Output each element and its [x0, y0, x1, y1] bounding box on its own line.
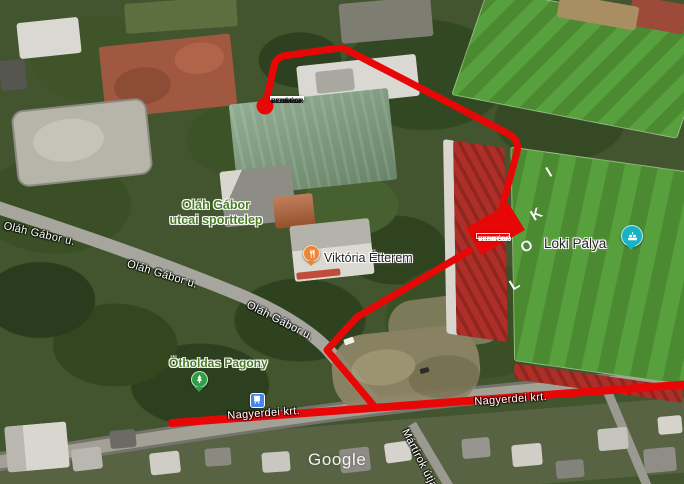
poi-label-park[interactable]: Ötholdas Pagony — [169, 356, 268, 370]
sports-ground-line2: utcai sporttelep — [146, 213, 286, 228]
poi-label-restaurant[interactable]: Viktória Étterem — [324, 251, 413, 265]
google-watermark: Google — [308, 450, 366, 470]
restaurant-pin-icon[interactable] — [303, 245, 320, 267]
stadium-pin-tip — [626, 245, 636, 255]
route-path-south — [327, 251, 469, 406]
poi-label-stadium[interactable]: Loki Pálya — [544, 236, 606, 251]
guest-sector-entrance-label: VENDÉG SZEKTOR BEJÁRAT — [270, 96, 304, 100]
restaurant-pin-circle — [303, 245, 320, 262]
route-path-north — [265, 48, 518, 222]
transit-stop-icon[interactable] — [250, 393, 265, 408]
restaurant-pin-tip — [306, 261, 316, 271]
tree-pin-tip — [194, 387, 204, 397]
parking-label-line3: PARKOLÓ — [478, 236, 511, 244]
map-canvas[interactable]: L O K I VENDÉG SZEKTOR BEJÁRAT VENDÉG SZ… — [0, 0, 684, 484]
tree-pin-icon[interactable] — [191, 371, 208, 393]
restaurant-glyph — [307, 249, 317, 259]
poi-label-sports-ground[interactable]: Oláh Gábor utcai sporttelep — [146, 198, 286, 228]
stadium-glyph — [626, 230, 639, 243]
guest-sector-parking-label: VENDÉG SZEKTOR PARKOLÓ — [476, 233, 510, 239]
entrance-label-line3: BEJÁRAT — [271, 98, 303, 106]
tree-pin-circle — [191, 371, 208, 388]
tree-glyph — [194, 374, 205, 385]
parking-area-marker — [466, 204, 525, 255]
stadium-pin-circle — [621, 225, 643, 247]
sports-ground-line1: Oláh Gábor — [146, 198, 286, 213]
bus-glyph — [252, 394, 262, 405]
stadium-pin-icon[interactable] — [621, 225, 643, 253]
